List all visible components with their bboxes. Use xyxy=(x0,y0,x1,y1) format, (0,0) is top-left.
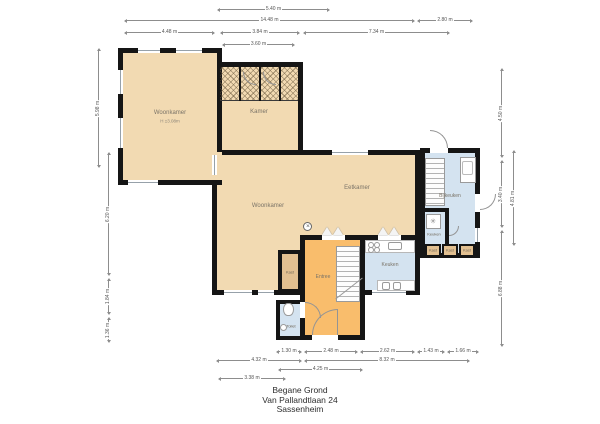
label-eetkamer: Eetkamer xyxy=(344,185,370,191)
window-bijkeuken-right xyxy=(475,228,480,242)
dim-bottom-248: 2.48 m xyxy=(304,348,358,355)
window-center-bottom-2 xyxy=(258,290,274,295)
window-eetkamer-top xyxy=(332,150,368,155)
freezer-icon: ✳ xyxy=(430,219,436,226)
window-woonkamer-bottom xyxy=(128,180,158,185)
window-woonkamer-top-1 xyxy=(138,48,160,53)
folding-door-4 xyxy=(389,227,399,235)
dim-bottom-166: 1.66 m xyxy=(447,348,479,355)
label-keuken-small: Keuken xyxy=(427,232,441,237)
label-entree: Entree xyxy=(316,274,331,280)
folding-door-3 xyxy=(378,227,388,235)
front-door-leaf xyxy=(337,309,338,335)
dim-bottom-130: 1.30 m xyxy=(276,348,302,355)
dim-right-481: 4.81 m xyxy=(510,150,517,246)
dim-top-540: 5.40 m xyxy=(217,6,330,13)
label-kast: Kast xyxy=(286,270,294,275)
title-city: Sassenheim xyxy=(0,405,600,415)
dim-left-184: 1.84 m xyxy=(105,278,112,315)
dim-bottom-143: 1.43 m xyxy=(417,348,445,355)
front-door-gap xyxy=(312,335,338,340)
hatch-divider-2 xyxy=(259,67,261,101)
label-kast-unit-1: Kast xyxy=(429,248,437,253)
folding-door-1 xyxy=(322,227,332,235)
kitchen-sink-basin-2 xyxy=(393,282,401,290)
hatch-divider-1 xyxy=(239,67,241,101)
dim-bottom-338: 3.38 m xyxy=(218,375,286,382)
dim-left-620: 6.20 m xyxy=(105,152,112,276)
dim-bottom-432: 4.32 m xyxy=(216,357,302,364)
window-woonkamer-left-1 xyxy=(118,70,123,94)
dim-top-280: 2.80 m xyxy=(417,17,473,24)
label-woonkamer-upper-height: H ±3.08m xyxy=(160,119,179,124)
bijkeuken-top-door-gap xyxy=(430,148,448,153)
label-woonkamer: Woonkamer xyxy=(252,203,284,209)
room-woonkamer-upper xyxy=(118,48,222,185)
window-center-bottom-1 xyxy=(224,290,252,295)
bijkeuken-right-door-arc xyxy=(480,194,496,210)
bijkeuken-sink-basin xyxy=(462,161,473,175)
label-keuken: Keuken xyxy=(382,262,399,268)
dim-bottom-425: 4.25 m xyxy=(278,366,363,373)
dim-right-340: 3.40 m xyxy=(498,160,505,228)
meter-icon: ✕ xyxy=(306,225,310,230)
window-woonkamer-left-2 xyxy=(118,118,123,148)
dim-left-136: 1.36 m xyxy=(105,317,112,343)
kitchen-sink-top xyxy=(388,242,402,250)
label-toilet: Toilet xyxy=(286,324,295,329)
dim-top-360: 3.60 m xyxy=(222,41,295,48)
label-bijkeuken: Bijkeuken xyxy=(439,193,461,199)
dim-top-448: 4.48 m xyxy=(124,29,215,36)
entree-door-gap xyxy=(322,235,345,240)
label-kast-unit-3: Kast xyxy=(463,248,471,253)
dim-bottom-262: 2.62 m xyxy=(360,348,415,355)
dim-top-734: 7.34 m xyxy=(303,29,450,36)
dim-top-384: 3.84 m xyxy=(220,29,300,36)
label-kamer: Kamer xyxy=(250,109,268,115)
wc xyxy=(283,303,294,316)
stove-burner-4 xyxy=(374,247,380,253)
dim-right-688: 6.88 m xyxy=(498,230,505,347)
dim-left-598: 5.98 m xyxy=(95,48,102,168)
kitchen-sink-basin-1 xyxy=(382,282,390,290)
window-woonkamer-top-2 xyxy=(176,48,202,53)
dim-top-1448: 14.48 m xyxy=(124,17,415,24)
plan-title: Begane Grond Van Pallandtlaan 24 Sassenh… xyxy=(0,386,600,415)
folding-door-2 xyxy=(333,227,343,235)
window-center-left xyxy=(212,155,217,175)
dim-right-450: 4.50 m xyxy=(498,68,505,158)
label-woonkamer-upper: Woonkamer xyxy=(154,110,186,116)
label-kast-unit-2: Kast xyxy=(446,248,454,253)
bijkeuken-top-door-arc xyxy=(430,130,448,148)
floor-plan: ✳ ✕ Woonkamer H ±3.08m Kamer Woonkamer E… xyxy=(0,0,600,424)
dim-bottom-832: 8.32 m xyxy=(304,357,470,364)
hatch-divider-3 xyxy=(279,67,281,101)
